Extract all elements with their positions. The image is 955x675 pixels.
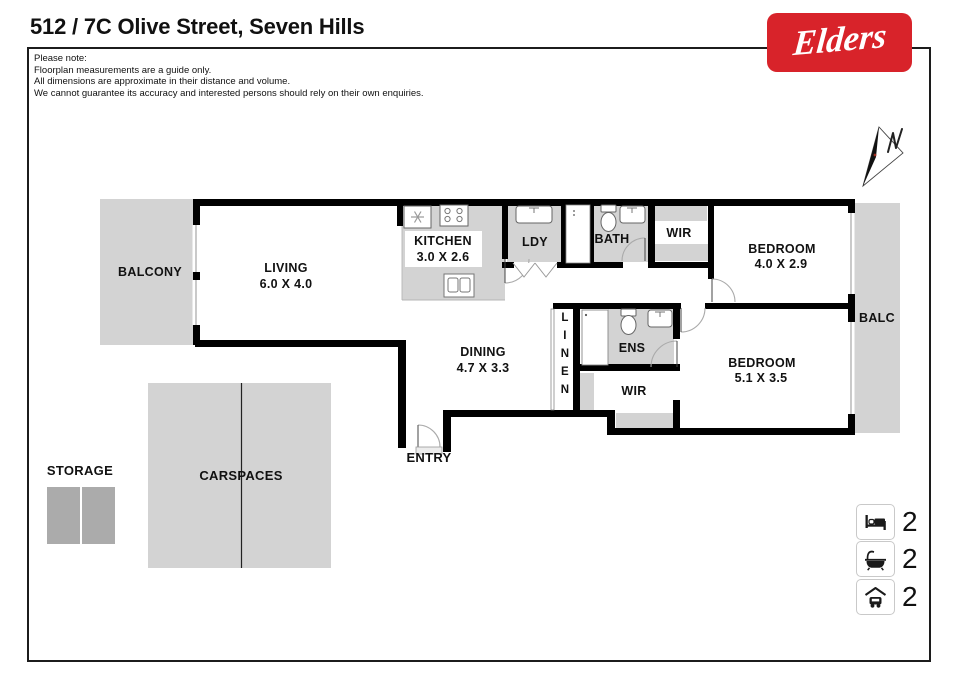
bedroom2-dims: 5.1 X 3.5 <box>735 371 788 385</box>
svg-text:N: N <box>561 348 570 360</box>
living-label: LIVING <box>264 261 307 275</box>
bedroom-count: 2 <box>902 506 918 538</box>
ensuite-label: ENS <box>619 341 646 355</box>
bath-toilet-icon <box>601 205 616 212</box>
dining-label: DINING <box>460 345 506 359</box>
svg-text:I: I <box>563 330 567 342</box>
carspaces-label: CARSPACES <box>199 468 282 483</box>
entry-label: ENTRY <box>406 450 451 465</box>
svg-text:N: N <box>561 384 570 396</box>
carspace-count: 2 <box>902 581 918 613</box>
bath-icon <box>856 541 895 577</box>
bathroom-count: 2 <box>902 543 918 575</box>
entry-door-arc <box>418 425 440 447</box>
svg-text:E: E <box>561 366 569 378</box>
storage-box-2 <box>82 487 115 544</box>
north-arrow-icon <box>863 127 903 186</box>
bath-toilet-bowl <box>601 213 616 232</box>
elders-logo-text: Elders <box>791 16 888 70</box>
kitchen-dims: 3.0 X 2.6 <box>417 250 470 264</box>
living-dims: 6.0 X 4.0 <box>260 277 313 291</box>
ensuite-toilet-bowl <box>621 316 636 335</box>
svg-text:L: L <box>561 312 568 324</box>
kitchen-label: KITCHEN <box>414 234 472 248</box>
wir1-label: WIR <box>666 226 691 240</box>
storage-label: STORAGE <box>47 463 113 478</box>
bedroom1-label: BEDROOM <box>748 242 815 256</box>
stove-icon <box>440 205 468 226</box>
bedroom2-label: BEDROOM <box>728 356 795 370</box>
bath-label: BATH <box>595 232 630 246</box>
elders-logo: Elders <box>767 13 912 72</box>
balcony-left-label: BALCONY <box>118 265 182 279</box>
floorplan-svg: BALCONY LIVING 6.0 X 4.0 KITCHEN 3.0 X 2… <box>0 0 955 675</box>
legend-carspaces: 2 <box>856 579 918 615</box>
wir1-shelf-top <box>655 206 707 221</box>
bed-icon <box>856 504 895 540</box>
storage-boxes <box>47 487 115 544</box>
balcony-right-label: BALC <box>859 311 895 325</box>
bedroom1-dims: 4.0 X 2.9 <box>755 257 808 271</box>
shower <box>582 310 608 365</box>
ensuite-toilet-icon <box>621 309 636 316</box>
cupboard <box>566 205 590 263</box>
floorplan-page: 512 / 7C Olive Street, Seven Hills Pleas… <box>0 0 955 675</box>
storage-box-1 <box>47 487 80 544</box>
wir2-shelf-left <box>578 373 594 413</box>
car-icon <box>856 579 895 615</box>
legend-bathrooms: 2 <box>856 541 918 577</box>
wir1-shelf-bottom <box>652 244 710 261</box>
dining-dims: 4.7 X 3.3 <box>457 361 510 375</box>
wir2-label: WIR <box>621 384 646 398</box>
legend-bedrooms: 2 <box>856 504 918 540</box>
north-letter <box>888 129 902 152</box>
wir2-shelf-bottom <box>616 413 675 428</box>
laundry-label: LDY <box>522 235 548 249</box>
laundry-bifold-door <box>513 263 557 277</box>
linen-label: L I N E N <box>561 312 570 396</box>
